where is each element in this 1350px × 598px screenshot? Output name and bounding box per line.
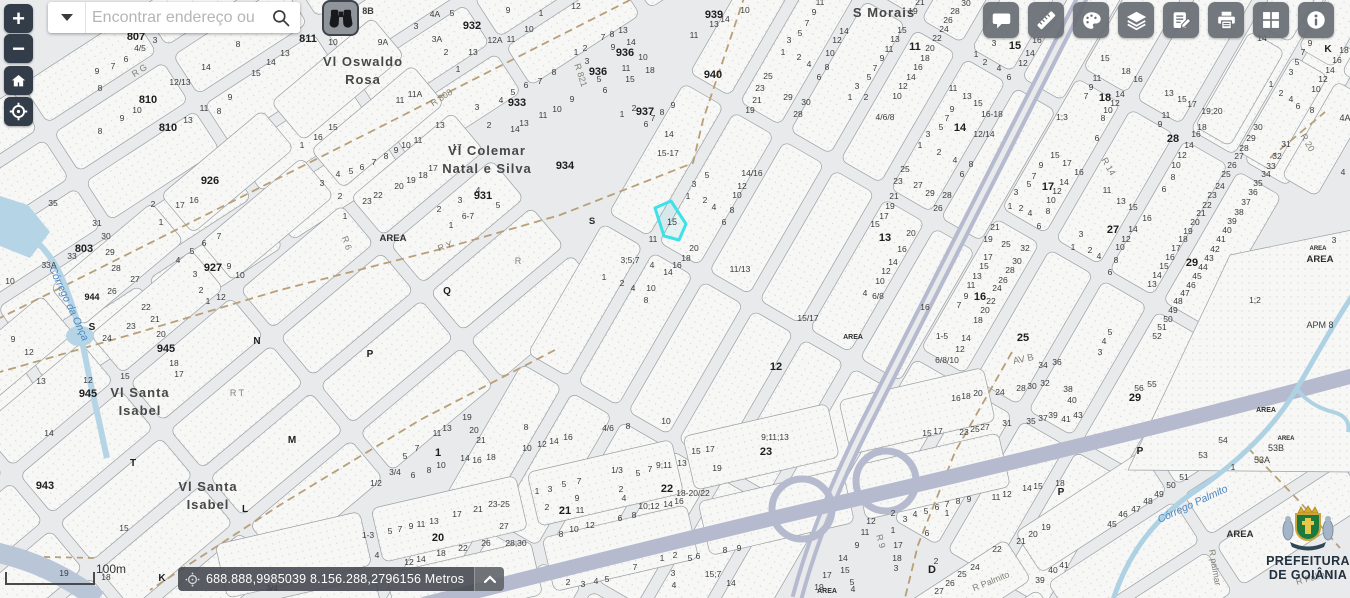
map-label: 10 — [436, 460, 446, 470]
map-label: 32 — [1020, 243, 1030, 253]
map-label: Isabel — [119, 403, 162, 418]
binoculars-button[interactable] — [322, 0, 359, 36]
map-label: 5 — [688, 553, 693, 563]
map-label: 30 — [1027, 381, 1037, 391]
map-label: 10 — [5, 276, 15, 286]
home-icon — [10, 73, 27, 89]
map-label: 21 — [915, 0, 925, 7]
palette-button[interactable] — [1073, 2, 1109, 38]
map-label: 4A — [1339, 113, 1350, 123]
map-label: 5 — [496, 200, 501, 210]
layers-button[interactable] — [1118, 2, 1154, 38]
map-label: 5 — [1295, 57, 1300, 67]
map-label: 46 — [1118, 509, 1128, 519]
map-label: 9A — [378, 37, 389, 47]
map-label: 17 — [1187, 99, 1197, 109]
map-label: 3 — [894, 563, 899, 573]
map-label: 21 — [1016, 536, 1026, 546]
map-label: 23 — [959, 427, 969, 437]
map-label: 1 — [848, 92, 853, 102]
map-label: 11 — [507, 34, 516, 44]
map-label: 20 — [469, 425, 479, 435]
map-label: 12 — [83, 375, 93, 385]
map-label: 6 — [935, 502, 940, 512]
locate-button[interactable] — [4, 97, 33, 126]
map-label: 18 — [1339, 45, 1349, 55]
map-label: 15 — [979, 261, 989, 271]
map-label: K — [1324, 44, 1332, 55]
map-label: 6 — [644, 119, 649, 129]
map-label: 15 — [870, 219, 880, 229]
map-label: 3 — [548, 484, 553, 494]
map-label: Vl Santa — [110, 385, 169, 400]
map-label: 1 — [159, 217, 164, 227]
map-label: 14 — [1184, 140, 1194, 150]
map-label: 28;30 — [505, 538, 527, 548]
map-label: 16 — [974, 291, 986, 303]
map-canvas[interactable]: Vl OswaldoRosaVl ColemarNatal e SilvaVl … — [0, 0, 1350, 598]
map-label: 2 — [1019, 203, 1024, 213]
map-label: 13 — [618, 25, 628, 35]
home-button[interactable] — [4, 66, 33, 95]
map-label: 14 — [838, 553, 848, 563]
map-label: 8 — [1101, 113, 1106, 123]
map-label: 9 — [611, 42, 616, 52]
map-label: 17 — [174, 369, 184, 379]
map-label: M — [288, 435, 296, 446]
map-label: 8 — [384, 151, 389, 161]
map-label: 16 — [1332, 55, 1342, 65]
map-label: 10 — [661, 416, 671, 426]
map-label: 28 — [793, 109, 803, 119]
map-label: AREA — [1277, 436, 1295, 442]
map-label: 13 — [519, 118, 529, 128]
map-label: 13 — [879, 232, 891, 244]
map-label: 11 — [992, 492, 1001, 502]
map-label: 13 — [709, 19, 719, 29]
map-label: 3 — [671, 568, 676, 578]
map-label: 19 — [462, 412, 472, 422]
coordinates-bar: 688.888,9985039 8.156.288,2796156 Metros — [178, 567, 504, 591]
map-label: 8 — [956, 496, 961, 506]
map-label: 31 — [1002, 418, 1012, 428]
map-label: 8 — [236, 39, 241, 49]
print-button[interactable] — [1208, 2, 1244, 38]
map-label: 933 — [508, 97, 526, 109]
map-label: 2 — [444, 47, 449, 57]
map-label: 13 — [183, 115, 193, 125]
map-label: 41 — [1061, 414, 1071, 424]
search-type-dropdown[interactable] — [48, 2, 86, 33]
map-label: 1 — [343, 211, 348, 221]
map-label: 9;11 — [656, 460, 672, 470]
map-label: 2 — [937, 147, 942, 157]
map-label: 8 — [552, 67, 557, 77]
map-label: 21 — [473, 504, 483, 514]
map-label: 20 — [156, 329, 166, 339]
map-label: 36 — [1248, 187, 1258, 197]
map-label: 5 — [597, 74, 602, 84]
map-label: 15 — [840, 565, 850, 575]
map-label: 15 — [328, 122, 338, 132]
map-label: 12 — [24, 347, 34, 357]
map-label: 27 — [499, 521, 509, 531]
map-label: 29 — [105, 247, 115, 257]
map-label: 1-5 — [936, 331, 949, 341]
map-label: 38 — [1063, 384, 1073, 394]
map-label: 37 — [1241, 197, 1251, 207]
map-label: 7 — [805, 18, 810, 28]
zoom-out-button[interactable]: − — [4, 34, 33, 63]
map-label: 1/3 — [611, 465, 623, 475]
map-label: 10 — [740, 5, 750, 15]
map-label: 4 — [997, 63, 1002, 73]
map-label: 810 — [159, 122, 177, 134]
map-label: 18 — [645, 65, 655, 75]
map-label: 11A — [408, 89, 423, 99]
map-label: 1-3 — [362, 530, 375, 540]
map-label: 53 — [1198, 450, 1208, 460]
map-label: 936 — [616, 47, 634, 59]
map-label: 30 — [801, 97, 811, 107]
map-label: 25 — [970, 424, 980, 434]
map-label: 940 — [704, 69, 722, 81]
map-label: 12 — [955, 344, 965, 354]
map-label: 4 — [1289, 94, 1294, 104]
map-label: 6-7 — [462, 211, 475, 221]
map-label: AREA — [1307, 254, 1334, 265]
map-label: 14 — [664, 129, 674, 139]
map-label: 26 — [107, 286, 117, 296]
coordinates-expand-button[interactable] — [474, 567, 504, 591]
map-label: 5 — [349, 166, 354, 176]
map-label: 10 — [1171, 160, 1181, 170]
map-label: 9 — [394, 145, 399, 155]
map-label: 20 — [689, 243, 699, 253]
map-label: 5 — [605, 574, 610, 584]
map-label: 22 — [992, 544, 1002, 554]
map-label: 2 — [487, 120, 492, 130]
map-label: 15 — [120, 371, 130, 381]
map-label: L — [242, 504, 248, 515]
map-label: 6 — [1007, 72, 1012, 82]
map-label: 15 — [1177, 94, 1187, 104]
map-label: 11 — [576, 505, 585, 515]
map-label: 4 — [622, 493, 627, 503]
search-button[interactable] — [262, 2, 300, 33]
map-label: 15;7 — [705, 569, 722, 579]
map-label: 1 — [449, 220, 454, 230]
map-label: AREA — [1227, 529, 1254, 540]
map-label: 28 — [1005, 265, 1015, 275]
map-label: 51 — [1179, 472, 1189, 482]
map-label: 10 — [875, 276, 885, 286]
map-label: 21 — [752, 95, 762, 105]
map-label: 3 — [1014, 187, 1019, 197]
coat-of-arms-icon — [1276, 504, 1340, 554]
map-label: 8 — [98, 126, 103, 136]
map-label: 11 — [417, 519, 426, 529]
map-label: 29 — [1186, 257, 1198, 269]
map-label: 7 — [415, 443, 420, 453]
map-label: 15 — [973, 98, 983, 108]
map-label: 5 — [798, 28, 803, 38]
map-label: 41 — [1216, 234, 1226, 244]
map-label: 28 — [1167, 133, 1179, 145]
map-label: 23 — [755, 83, 765, 93]
map-label: 17 — [175, 200, 185, 210]
scale-bar: 100m — [2, 556, 142, 595]
map-label: 11 — [622, 63, 631, 73]
map-label: 8 — [626, 421, 631, 431]
map-label: 23 — [893, 176, 903, 186]
map-label: 11 — [414, 135, 423, 145]
map-label: 7 — [1032, 171, 1037, 181]
map-label: 23 — [362, 196, 372, 206]
map-label: 11 — [690, 30, 699, 40]
map-label: 1 — [1231, 462, 1236, 472]
measure-button[interactable] — [1028, 2, 1064, 38]
map-label: 1 — [300, 140, 305, 150]
map-label: 31 — [92, 218, 102, 228]
map-label: 5 — [403, 451, 408, 461]
map-label: 9 — [575, 493, 580, 503]
map-label: 5 — [511, 87, 516, 97]
map-label: 12 — [1177, 150, 1187, 160]
map-label: 4 — [594, 576, 599, 586]
toolbar — [983, 2, 1334, 38]
coordinates-value: 688.888,9985039 8.156.288,2796156 Metros — [206, 572, 474, 586]
map-label: 2 — [797, 52, 802, 62]
map-label: 28 — [1016, 383, 1026, 393]
map-label: 12 — [1002, 489, 1012, 499]
map-label: 15 — [119, 523, 129, 533]
map-label: 37 — [1038, 413, 1048, 423]
map-label: 54 — [1218, 435, 1228, 445]
map-label: 21 — [889, 191, 899, 201]
map-label: 1 — [620, 109, 625, 119]
map-label: 21 — [150, 314, 160, 324]
map-label: K — [158, 573, 166, 584]
search-input[interactable] — [86, 9, 262, 27]
map-label: 45 — [1107, 519, 1117, 529]
map-label: 1 — [974, 49, 979, 59]
map-label: 30 — [1253, 122, 1263, 132]
map-label: 3 — [320, 178, 325, 188]
map-label: 3/4 — [389, 467, 401, 477]
map-label: 22 — [141, 302, 151, 312]
map-label: 15 — [667, 217, 677, 227]
map-label: 15 — [1128, 202, 1138, 212]
map-label: 52 — [1152, 331, 1162, 341]
map-label: 27 — [980, 422, 990, 432]
search-icon — [271, 8, 291, 28]
map-label: 11 — [539, 110, 548, 120]
map-label: 50 — [1166, 480, 1176, 490]
map-label: 4 — [863, 288, 868, 298]
map-label: 926 — [201, 175, 219, 187]
map-label: 12 — [866, 516, 876, 526]
map-label: 15/17 — [797, 313, 819, 323]
map-label: 25 — [900, 164, 910, 174]
map-label: 9;11;13 — [761, 432, 789, 442]
map-label: 9 — [964, 291, 969, 301]
map-label: 6 — [960, 169, 965, 179]
map-label: P — [1137, 446, 1144, 457]
map-label: 18 — [973, 315, 983, 325]
map-label: 27 — [934, 586, 944, 596]
zoom-in-button[interactable]: + — [4, 4, 33, 33]
map-label: 35 — [48, 198, 58, 208]
map-label: 943 — [36, 480, 54, 492]
search-bar — [48, 2, 300, 33]
map-label: 5 — [388, 526, 393, 536]
map-label: 8 — [1171, 172, 1176, 182]
map-label: 2 — [338, 191, 343, 201]
map-label: 2 — [151, 199, 156, 209]
map-label: 15 — [1100, 53, 1110, 63]
map-label: 12 — [881, 266, 891, 276]
comment-button[interactable] — [983, 2, 1019, 38]
map-label: 15 — [691, 446, 701, 456]
map-label: 8 — [524, 422, 529, 432]
map-label: S — [89, 322, 96, 333]
map-label: 934 — [556, 160, 575, 172]
map-label: 11 — [649, 234, 658, 244]
map-label: 12 — [770, 361, 782, 373]
map-label: P — [367, 349, 374, 360]
map-label: 9 — [950, 104, 955, 114]
map-label: 19 — [908, 6, 918, 16]
map-label: 1 — [539, 8, 544, 18]
map-label: 48 — [1143, 496, 1153, 506]
map-label: 7 — [873, 63, 878, 73]
map-label: 10 — [552, 104, 562, 114]
map-label: 16 — [472, 455, 482, 465]
map-label: 20 — [925, 43, 935, 53]
map-label: 17 — [893, 540, 903, 550]
map-label: 12 — [1018, 58, 1028, 68]
map-label: 56 — [1134, 383, 1144, 393]
map-label: 3 — [458, 195, 463, 205]
map-label: 16 — [1074, 167, 1084, 177]
ruler-icon — [1035, 9, 1057, 31]
map-label: 19 — [406, 175, 416, 185]
map-label: 7 — [111, 61, 116, 71]
map-label: 7 — [1301, 47, 1306, 57]
map-label: 10 — [401, 140, 411, 150]
map-label: 10 — [638, 52, 648, 62]
map-label: 33 — [67, 251, 77, 261]
map-label: 29 — [783, 92, 793, 102]
map-label: 9 — [409, 521, 414, 531]
map-label: 14 — [663, 499, 673, 509]
map-label: 8 — [969, 159, 974, 169]
map-label: 4 — [176, 255, 181, 265]
map-label: 17 — [1062, 158, 1072, 168]
map-label: 4 — [672, 580, 677, 590]
map-label: 9 — [120, 113, 125, 123]
map-label: 9 — [812, 7, 817, 17]
map-label: 17 — [933, 426, 943, 436]
map-label: 10 — [569, 524, 579, 534]
comment-icon — [991, 10, 1012, 31]
map-label: 8 — [1310, 105, 1315, 115]
map-label: 11 — [1103, 185, 1112, 195]
map-label: 10 — [524, 24, 534, 34]
map-label: 49 — [1154, 489, 1164, 499]
grid-icon — [1261, 10, 1281, 30]
map-label: 25 — [1221, 169, 1231, 179]
map-label: 12 — [571, 1, 581, 11]
map-label: 15 — [1033, 481, 1043, 491]
map-label: 6 — [817, 72, 822, 82]
map-label: 2 — [566, 577, 571, 587]
panels-button[interactable] — [1253, 2, 1289, 38]
map-label: 8 — [98, 83, 103, 93]
map-label: 27 — [1107, 224, 1119, 236]
map-label: 11 — [396, 95, 405, 105]
map-label: 13 — [435, 120, 445, 130]
map-label: 41 — [1059, 560, 1069, 570]
map-label: 2 — [934, 556, 939, 566]
map-label: 21 — [559, 505, 571, 517]
map-label: 9 — [227, 261, 232, 271]
chevron-up-icon — [483, 574, 497, 584]
map-label: 4 — [650, 260, 655, 270]
map-label: 6 — [1108, 267, 1113, 277]
map-label: 21 — [476, 435, 486, 445]
map-label: 18 — [418, 170, 428, 180]
map-label: 945 — [79, 388, 97, 400]
map-label: 9 — [1308, 38, 1313, 48]
map-label: 40 — [1048, 565, 1058, 575]
info-button[interactable] — [1298, 2, 1334, 38]
map-label: 55 — [1147, 379, 1157, 389]
map-label: 16 — [313, 132, 323, 142]
map-label: 26 — [933, 203, 943, 213]
map-label: 4/6 — [602, 423, 614, 433]
map-label: 10 — [132, 105, 142, 115]
map-label: 4 — [476, 185, 481, 195]
map-label: 11 — [967, 280, 976, 290]
scale-label: 100m — [96, 562, 126, 576]
map-label: 8B — [362, 6, 374, 16]
map-label: 14/16 — [741, 168, 763, 178]
legend-edit-button[interactable] — [1163, 2, 1199, 38]
map-label: 17 — [452, 509, 462, 519]
map-label: Isabel — [187, 497, 230, 512]
map-label: Vl Oswaldo — [323, 54, 403, 69]
map-label: 6 — [124, 54, 129, 64]
map-label: 12 — [585, 520, 595, 530]
map-label: 16 — [189, 195, 199, 205]
map-label: 4 — [1102, 336, 1107, 346]
map-label: 15-17 — [657, 148, 679, 158]
map-label: 16 — [913, 62, 923, 72]
map-label: 20 — [432, 532, 444, 544]
map-app: Vl OswaldoRosaVl ColemarNatal e SilvaVl … — [0, 0, 1350, 598]
map-label: 29 — [1129, 392, 1141, 404]
map-label: 47 — [1131, 504, 1141, 514]
map-label: 23 — [760, 446, 772, 458]
map-label: 4/5 — [134, 43, 146, 53]
map-label: 927 — [204, 262, 222, 274]
map-label: 24 — [992, 283, 1002, 293]
map-label: 12 — [537, 439, 547, 449]
map-label: 2 — [1279, 88, 1284, 98]
map-label: 7 — [945, 113, 950, 123]
